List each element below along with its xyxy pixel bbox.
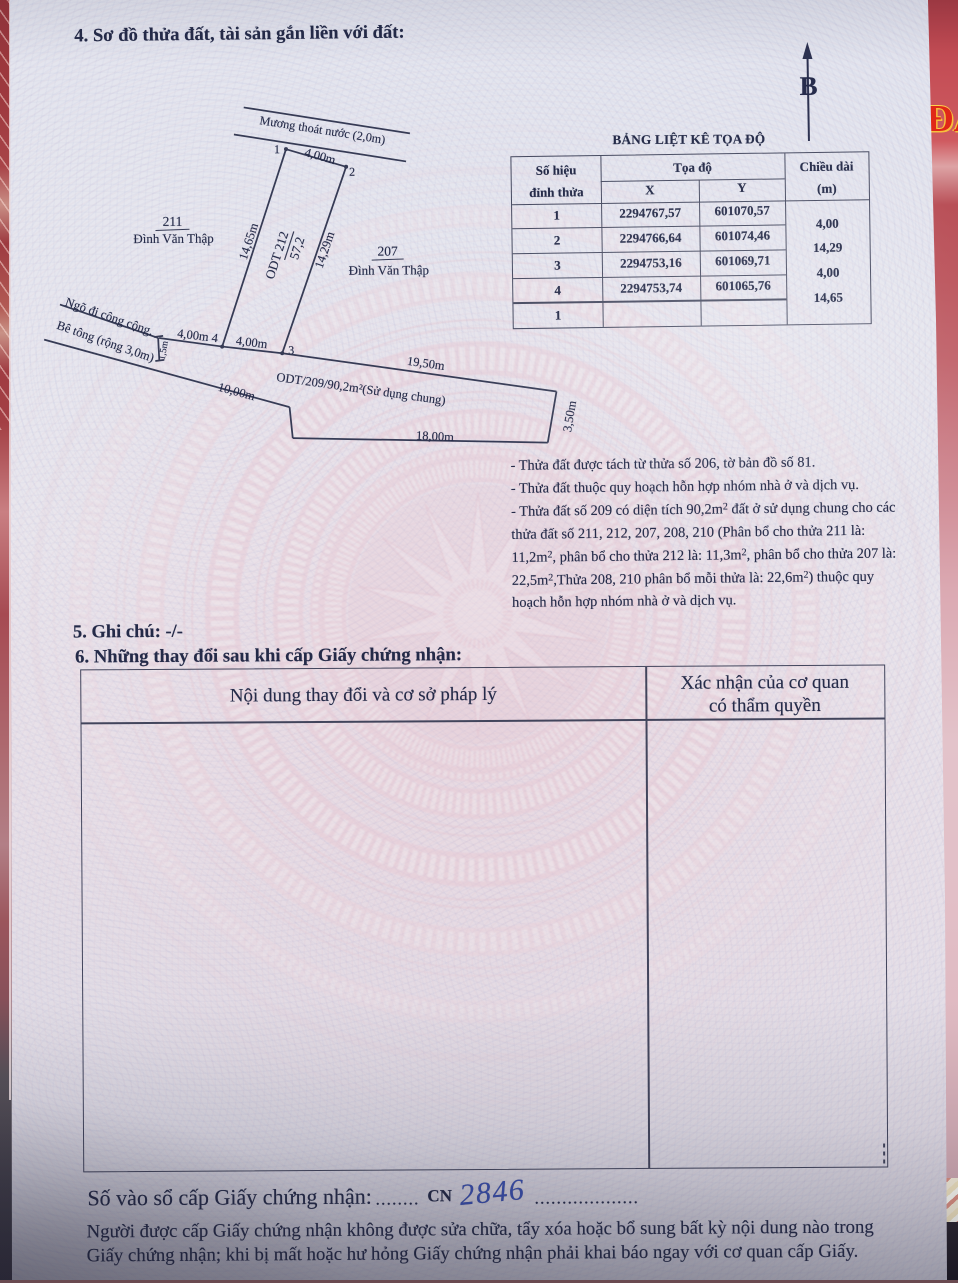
svg-text:207: 207 <box>377 243 398 258</box>
svg-text:18,00m: 18,00m <box>416 428 455 444</box>
svg-text:1: 1 <box>274 142 280 156</box>
svg-text:2: 2 <box>349 165 355 179</box>
svg-text:4,00m 4: 4,00m 4 <box>176 326 219 345</box>
svg-text:1,5m: 1,5m <box>158 340 171 361</box>
svg-text:4,00m: 4,00m <box>303 145 337 167</box>
svg-text:3,50m: 3,50m <box>560 399 579 433</box>
svg-text:211: 211 <box>163 214 183 229</box>
svg-text:Đình Văn Thập: Đình Văn Thập <box>348 262 428 277</box>
svg-text:14,65m: 14,65m <box>236 221 261 262</box>
svg-text:ODT/209/90,2m²(Sử dụng chung): ODT/209/90,2m²(Sử dụng chung) <box>276 370 447 407</box>
svg-text:3: 3 <box>288 343 294 357</box>
svg-text:14,29m: 14,29m <box>312 230 338 271</box>
svg-text:19,50m: 19,50m <box>406 354 446 373</box>
svg-text:B: B <box>800 71 818 101</box>
svg-text:10,00m: 10,00m <box>216 380 256 404</box>
svg-text:Đình Văn Thập: Đình Văn Thập <box>133 231 213 246</box>
